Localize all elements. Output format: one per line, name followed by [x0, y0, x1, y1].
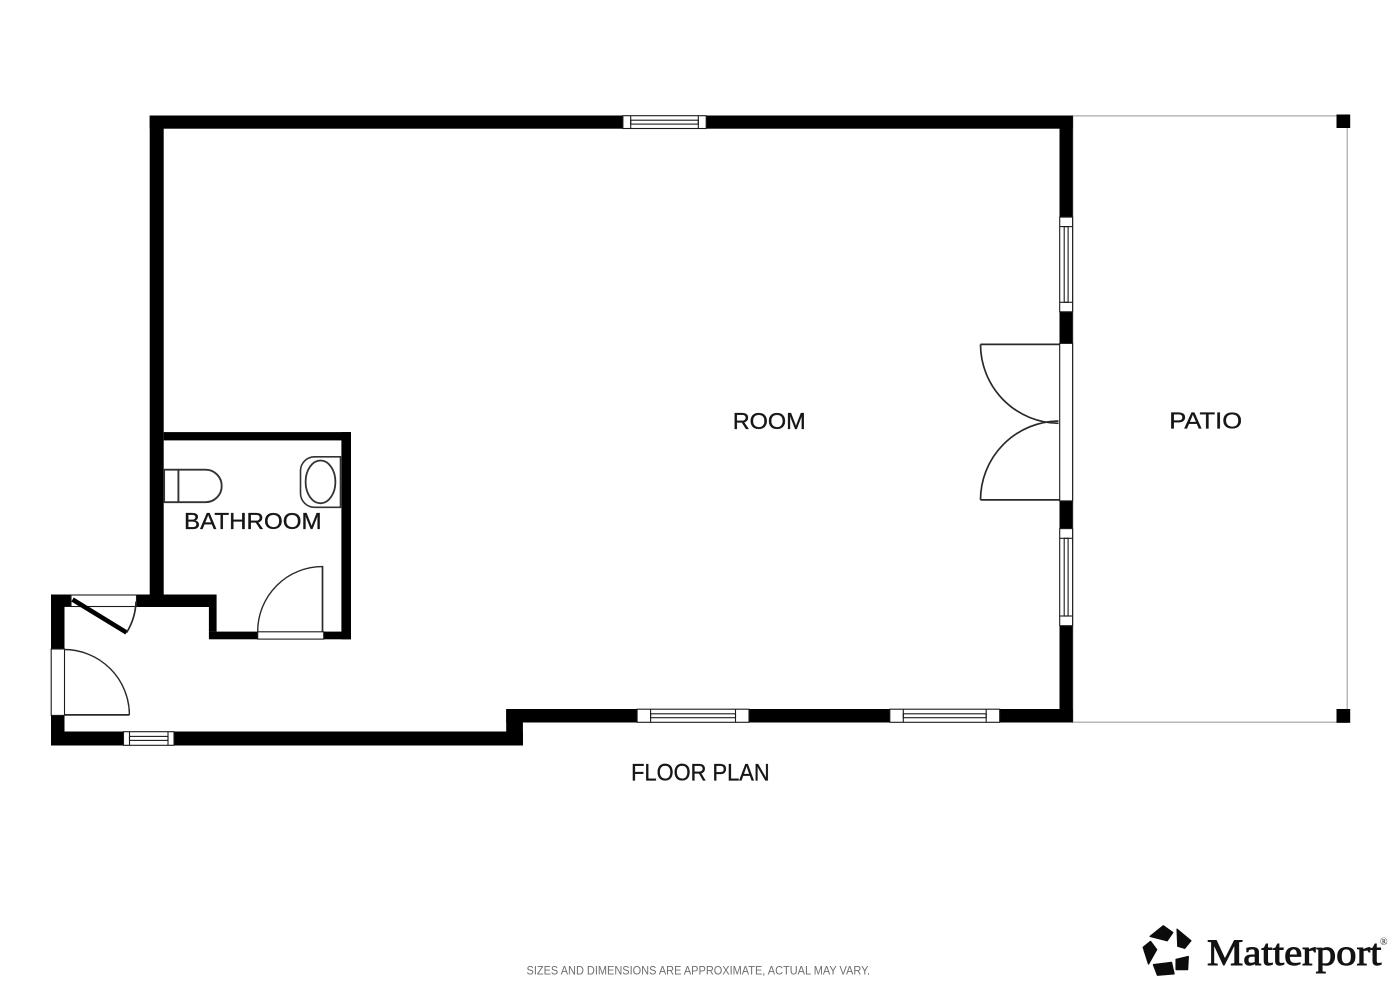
- svg-text:BATHROOM: BATHROOM: [184, 508, 322, 534]
- svg-text:FLOOR PLAN: FLOOR PLAN: [631, 760, 770, 787]
- svg-text:ROOM: ROOM: [733, 408, 806, 434]
- svg-text:SIZES AND DIMENSIONS ARE APPRO: SIZES AND DIMENSIONS ARE APPROXIMATE, AC…: [527, 963, 871, 977]
- svg-text:Matterport: Matterport: [1207, 932, 1382, 973]
- svg-text:PATIO: PATIO: [1169, 408, 1242, 434]
- svg-text:®: ®: [1380, 937, 1388, 948]
